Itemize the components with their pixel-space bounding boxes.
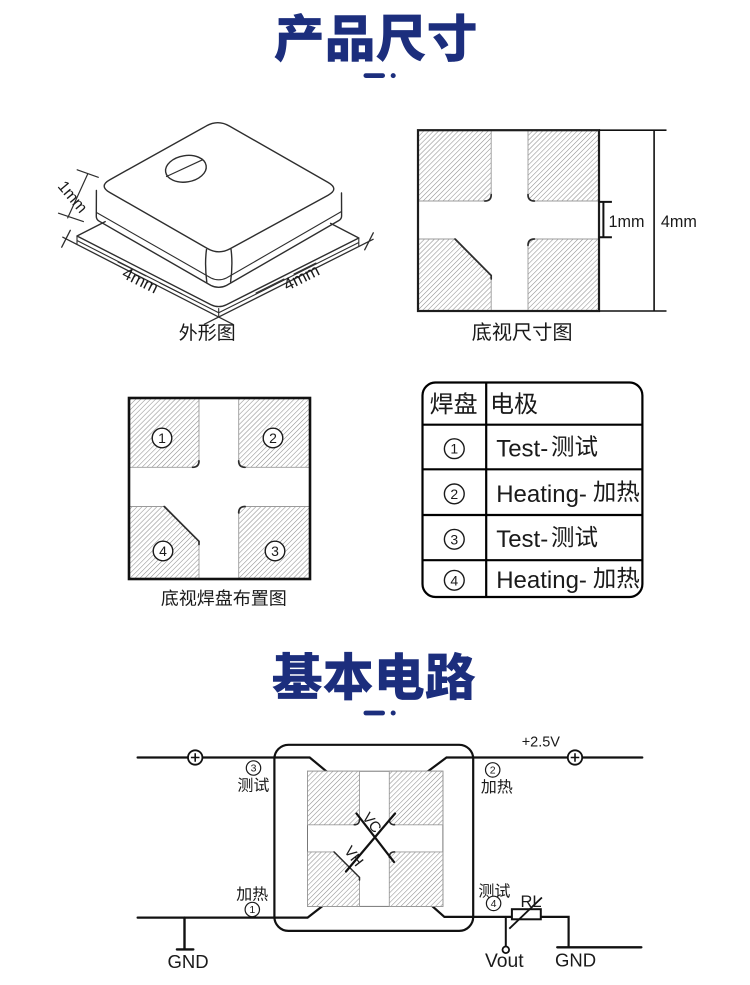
svg-text:+2.5V: +2.5V	[522, 735, 561, 751]
svg-text:2: 2	[450, 486, 458, 502]
svg-text:2: 2	[269, 430, 277, 446]
svg-text:1mm: 1mm	[609, 213, 645, 231]
svg-text:1: 1	[158, 430, 166, 446]
svg-text:RL: RL	[521, 893, 542, 911]
svg-text:4mm: 4mm	[280, 261, 322, 295]
svg-text:Test-: Test-	[496, 436, 548, 463]
svg-text:3: 3	[450, 531, 458, 547]
svg-text:4mm: 4mm	[661, 213, 697, 231]
svg-text:GND: GND	[555, 950, 596, 971]
svg-text:Heating-: Heating-	[496, 567, 587, 594]
svg-text:GND: GND	[168, 951, 209, 972]
svg-text:4: 4	[450, 572, 458, 588]
svg-text:Test-: Test-	[496, 526, 548, 553]
svg-text:1mm: 1mm	[54, 178, 91, 217]
svg-text:4: 4	[159, 543, 167, 559]
svg-text:1: 1	[450, 441, 458, 457]
svg-text:3: 3	[271, 543, 279, 559]
svg-text:4: 4	[491, 898, 497, 910]
svg-text:2: 2	[490, 765, 496, 777]
svg-text:3: 3	[251, 763, 257, 775]
svg-text:Vout: Vout	[485, 951, 524, 972]
svg-text:Heating-: Heating-	[496, 481, 587, 508]
svg-text:1: 1	[249, 904, 255, 916]
